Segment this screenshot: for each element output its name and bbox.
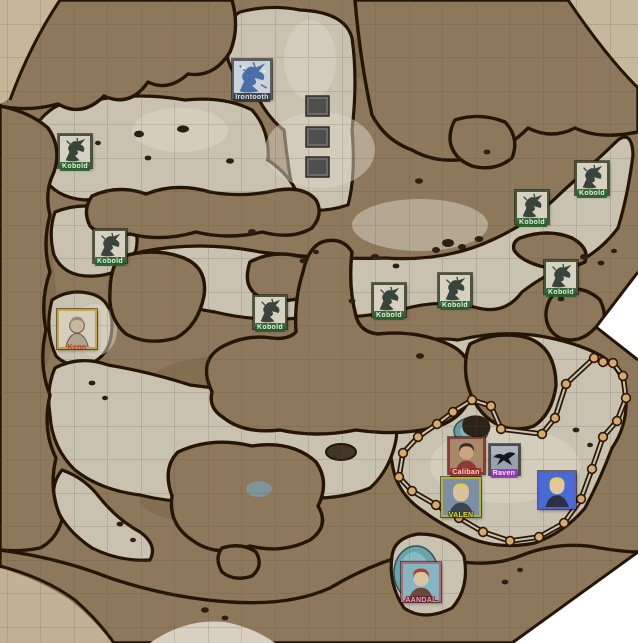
aandal-label: AANDAL — [403, 596, 438, 605]
valen-label: VALEN — [447, 511, 476, 520]
barrier-node[interactable] — [395, 473, 404, 482]
barrier-node[interactable] — [506, 537, 515, 546]
barrier-node[interactable] — [535, 533, 544, 542]
token-blue-pc[interactable] — [538, 471, 576, 509]
barrier-node[interactable] — [538, 430, 547, 439]
barrier-node[interactable] — [433, 420, 442, 429]
token-kobold-8[interactable]: Kobold — [575, 161, 609, 195]
token-kobold-6[interactable]: Kobold — [515, 190, 549, 224]
blue-pc-portrait — [538, 471, 576, 509]
token-kobold-1[interactable]: Kobold — [58, 134, 92, 168]
token-caliban[interactable]: Caliban — [448, 437, 485, 474]
raven-label: Raven — [491, 469, 518, 478]
barrier-node[interactable] — [609, 359, 618, 368]
barrier-node[interactable] — [551, 414, 560, 423]
caliban-label: Caliban — [450, 468, 481, 477]
token-kobold-3[interactable]: Kobold — [253, 295, 287, 329]
kobold-4-label: Kobold — [374, 311, 404, 320]
kobold-8-label: Kobold — [577, 189, 607, 198]
barrier-node[interactable] — [562, 380, 571, 389]
kobold-3-label: Kobold — [255, 323, 285, 332]
token-kobold-7[interactable]: Kobold — [544, 260, 578, 294]
barrier-node[interactable] — [399, 449, 408, 458]
kobold-1-label: Kobold — [60, 162, 90, 171]
barrier-node[interactable] — [487, 402, 496, 411]
barrier-node[interactable] — [449, 408, 458, 417]
token-aandal[interactable]: AANDAL — [401, 562, 441, 602]
barrier-node[interactable] — [613, 417, 622, 426]
token-kobold-4[interactable]: Kobold — [372, 283, 406, 317]
barrier-node[interactable] — [497, 425, 506, 434]
barrier-node[interactable] — [599, 358, 608, 367]
token-kobold-5[interactable]: Kobold — [438, 273, 472, 307]
irontooth-label: Irontooth — [233, 93, 270, 102]
kobold-2-label: Kobold — [95, 257, 125, 266]
barrier-node[interactable] — [468, 396, 477, 405]
token-kenn[interactable]: Kenn — [57, 309, 97, 349]
token-valen[interactable]: VALEN — [441, 477, 481, 517]
barrier-node[interactable] — [432, 501, 441, 510]
kobold-7-label: Kobold — [546, 288, 576, 297]
barrier-node[interactable] — [619, 372, 628, 381]
barrier-node[interactable] — [479, 528, 488, 537]
barrier-node[interactable] — [590, 354, 599, 363]
barrier-node[interactable] — [577, 495, 586, 504]
token-irontooth[interactable]: Irontooth — [232, 59, 272, 99]
kobold-5-label: Kobold — [440, 301, 470, 310]
barrier-node[interactable] — [414, 433, 423, 442]
barrier-node[interactable] — [622, 394, 631, 403]
token-raven[interactable]: Raven — [489, 444, 520, 475]
barrier-node[interactable] — [560, 519, 569, 528]
kenn-label: Kenn — [66, 343, 89, 352]
barrier-node[interactable] — [599, 433, 608, 442]
barrier-node[interactable] — [408, 487, 417, 496]
kobold-6-label: Kobold — [517, 218, 547, 227]
barrier-node[interactable] — [588, 465, 597, 474]
token-kobold-2[interactable]: Kobold — [93, 229, 127, 263]
